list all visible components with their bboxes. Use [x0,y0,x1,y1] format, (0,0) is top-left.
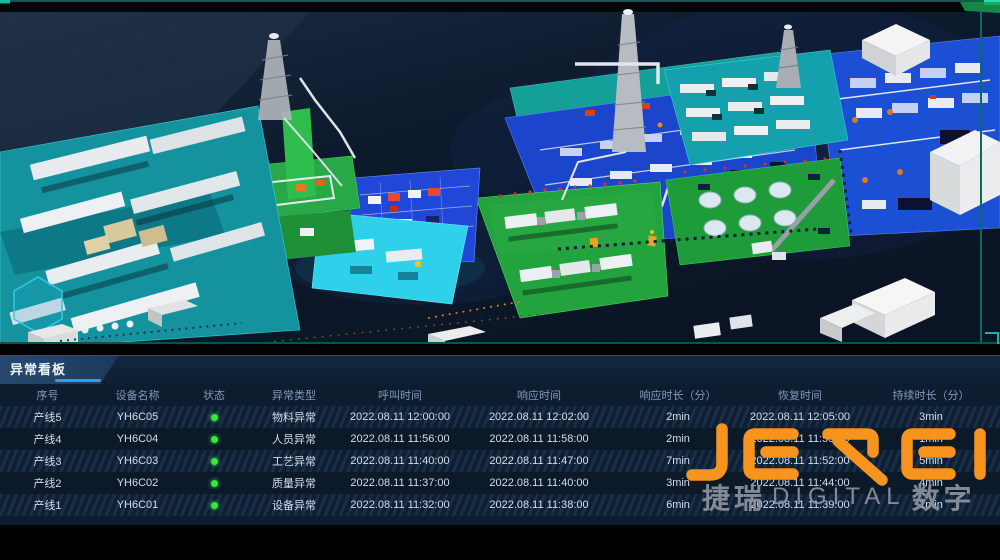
cell-response-duration: 6min [618,499,738,511]
cell-recover-time: 2022.08.11 11:52:00 [738,455,862,467]
table-row: 产线5 YH6C05 物料异常 2022.08.11 12:00:00 2022… [0,406,1000,428]
cell-type: 人员异常 [248,431,340,447]
panel-header: 异常看板 [0,356,1000,384]
cell-device: YH6C05 [95,411,180,423]
cell-call-time: 2022.08.11 11:37:00 [340,477,460,489]
cell-response-time: 2022.08.11 11:58:00 [460,433,618,445]
status-dot [211,436,218,443]
cell-type: 物料异常 [248,409,340,425]
cell-seq: 产线4 [0,431,95,447]
cell-type: 设备异常 [248,497,340,513]
cell-response-time: 2022.08.11 12:02:00 [460,411,618,423]
cell-seq: 产线2 [0,475,95,491]
cell-response-time: 2022.08.11 11:38:00 [460,499,618,511]
col-status: 状态 [180,387,248,403]
cell-call-time: 2022.08.11 11:56:00 [340,433,460,445]
cell-device: YH6C03 [95,455,180,467]
table-row: 产线1 YH6C01 设备异常 2022.08.11 11:32:00 2022… [0,494,1000,516]
cell-response-duration: 2min [618,411,738,423]
cell-total-duration: 1min [862,433,1000,445]
cell-device: YH6C04 [95,433,180,445]
col-call-time: 呼叫时间 [340,387,460,403]
cell-total-duration: 5min [862,455,1000,467]
cell-response-duration: 3min [618,477,738,489]
col-response-time: 响应时间 [460,387,618,403]
table-row: 产线3 YH6C03 工艺异常 2022.08.11 11:40:00 2022… [0,450,1000,472]
status-dot [211,502,218,509]
factory-3d-viewport[interactable] [0,0,1000,355]
cell-call-time: 2022.08.11 11:40:00 [340,455,460,467]
abnormal-board-panel: 异常看板 序号 设备名称 状态 异常类型 呼叫时间 响应时间 响应时长（分） 恢… [0,355,1000,525]
cell-recover-time: 2022.08.11 11:59:00 [738,433,862,445]
title-underline [55,379,101,382]
status-dot-cell [180,477,248,489]
cell-seq: 产线3 [0,453,95,469]
cell-type: 工艺异常 [248,453,340,469]
status-dot [211,458,218,465]
cell-call-time: 2022.08.11 11:32:00 [340,499,460,511]
status-dot [211,480,218,487]
status-dot-cell [180,433,248,445]
cell-total-duration: 3min [862,411,1000,423]
table-row: 产线2 YH6C02 质量异常 2022.08.11 11:37:00 2022… [0,472,1000,494]
cell-total-duration: 4min [862,477,1000,489]
table-row: 产线4 YH6C04 人员异常 2022.08.11 11:56:00 2022… [0,428,1000,450]
col-total-duration: 持续时长（分） [862,387,1000,403]
status-dot [211,414,218,421]
cell-recover-time: 2022.08.11 11:39:00 [738,499,862,511]
cell-recover-time: 2022.08.11 12:05:00 [738,411,862,423]
cell-call-time: 2022.08.11 12:00:00 [340,411,460,423]
col-recover-time: 恢复时间 [738,387,862,403]
status-dot-cell [180,499,248,511]
cell-response-time: 2022.08.11 11:40:00 [460,477,618,489]
cell-device: YH6C02 [95,477,180,489]
cell-response-duration: 2min [618,433,738,445]
cell-type: 质量异常 [248,475,340,491]
cell-recover-time: 2022.08.11 11:44:00 [738,477,862,489]
cell-seq: 产线1 [0,497,95,513]
table-header-row: 序号 设备名称 状态 异常类型 呼叫时间 响应时间 响应时长（分） 恢复时间 持… [0,384,1000,406]
col-device: 设备名称 [95,387,180,403]
cell-response-duration: 7min [618,455,738,467]
status-dot-cell [180,411,248,423]
cell-device: YH6C01 [95,499,180,511]
cell-seq: 产线5 [0,409,95,425]
status-dot-cell [180,455,248,467]
cell-response-time: 2022.08.11 11:47:00 [460,455,618,467]
dashboard-screen: 异常看板 序号 设备名称 状态 异常类型 呼叫时间 响应时间 响应时长（分） 恢… [0,0,1000,560]
col-response-duration: 响应时长（分） [618,387,738,403]
cell-total-duration: 1min [862,499,1000,511]
col-type: 异常类型 [248,387,340,403]
col-seq: 序号 [0,387,95,403]
